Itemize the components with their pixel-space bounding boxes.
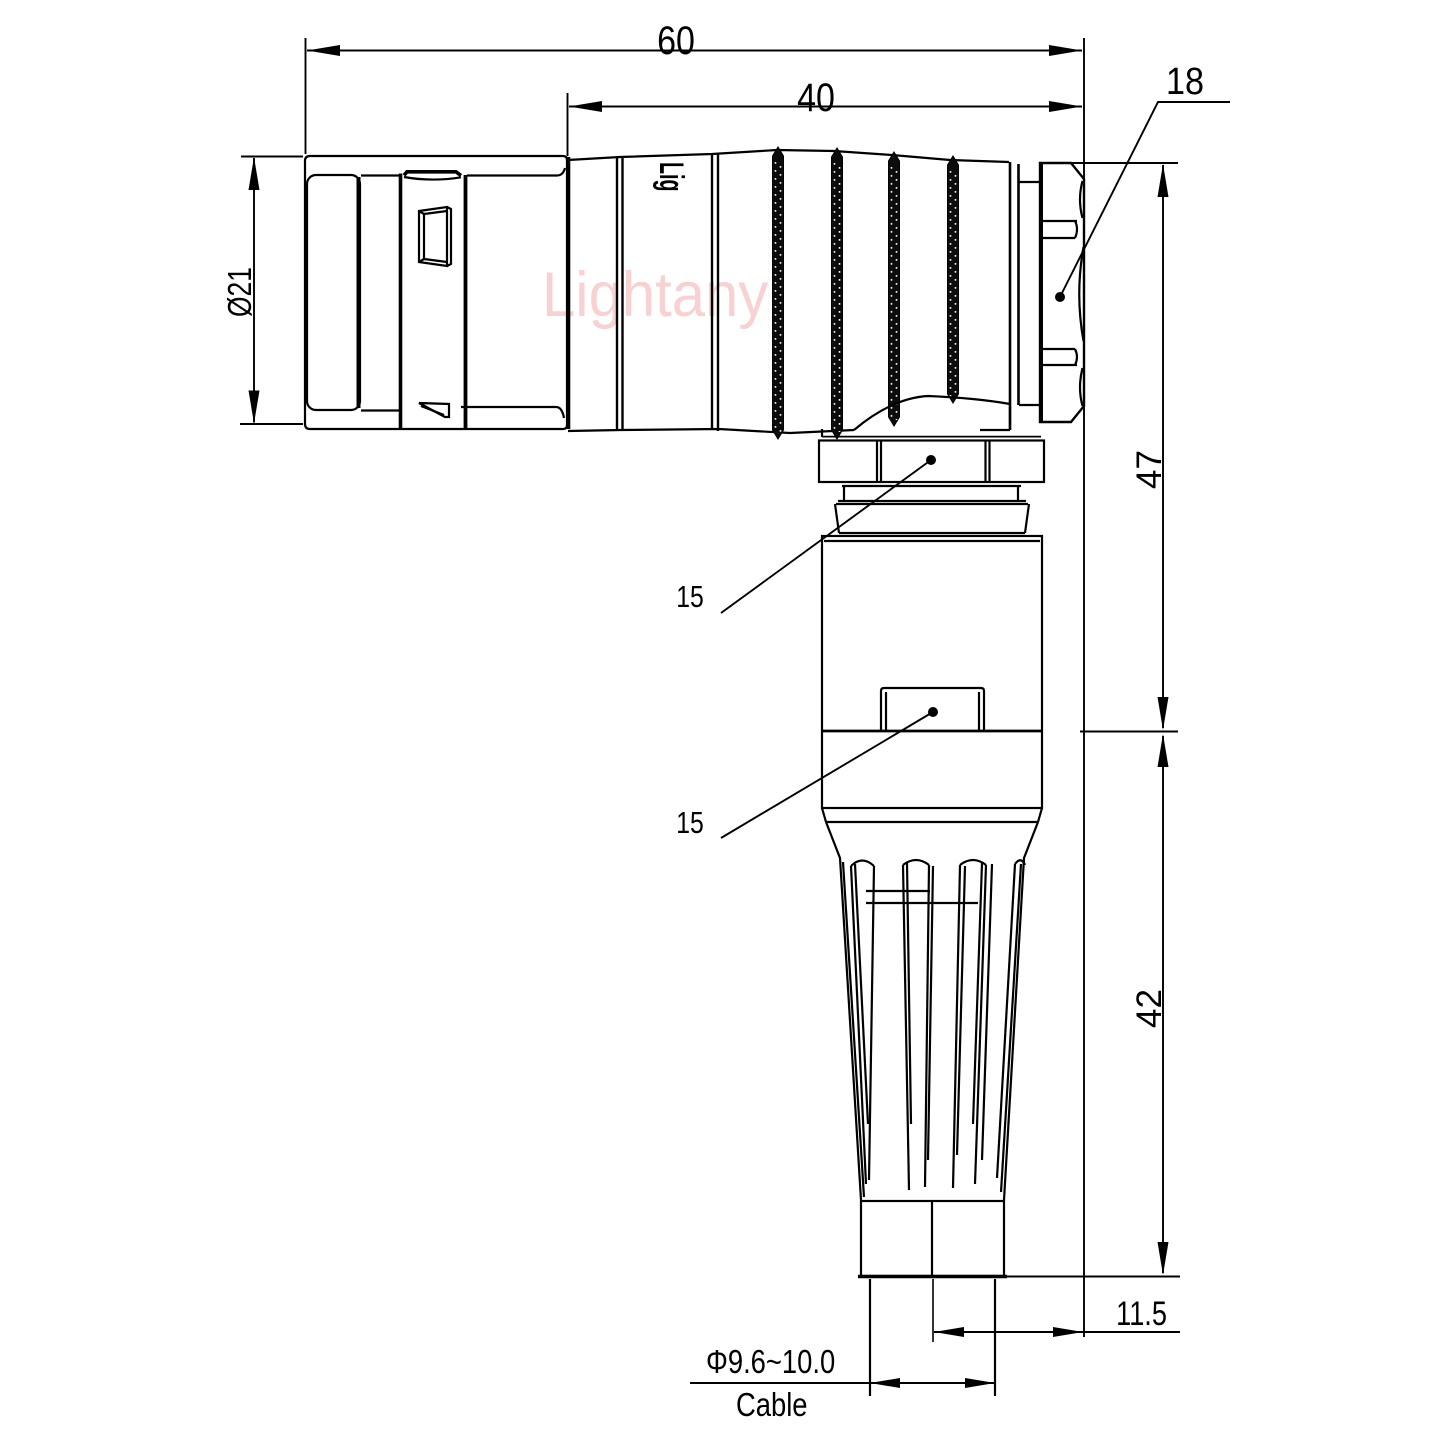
svg-text:15: 15 [676, 805, 704, 839]
svg-text:60: 60 [657, 17, 695, 62]
svg-text:Cable: Cable [736, 1388, 808, 1424]
svg-text:Ø21: Ø21 [222, 267, 258, 317]
svg-text:42: 42 [1130, 989, 1169, 1028]
svg-text:18: 18 [1166, 59, 1204, 102]
svg-text:47: 47 [1130, 450, 1169, 489]
svg-text:Φ9.6~10.0: Φ9.6~10.0 [706, 1345, 835, 1381]
svg-text:15: 15 [676, 579, 704, 613]
svg-text:Lightany: Lightany [542, 260, 769, 331]
svg-text:40: 40 [797, 74, 835, 119]
svg-text:Lig: Lig [653, 162, 691, 192]
svg-text:11.5: 11.5 [1116, 1294, 1167, 1333]
